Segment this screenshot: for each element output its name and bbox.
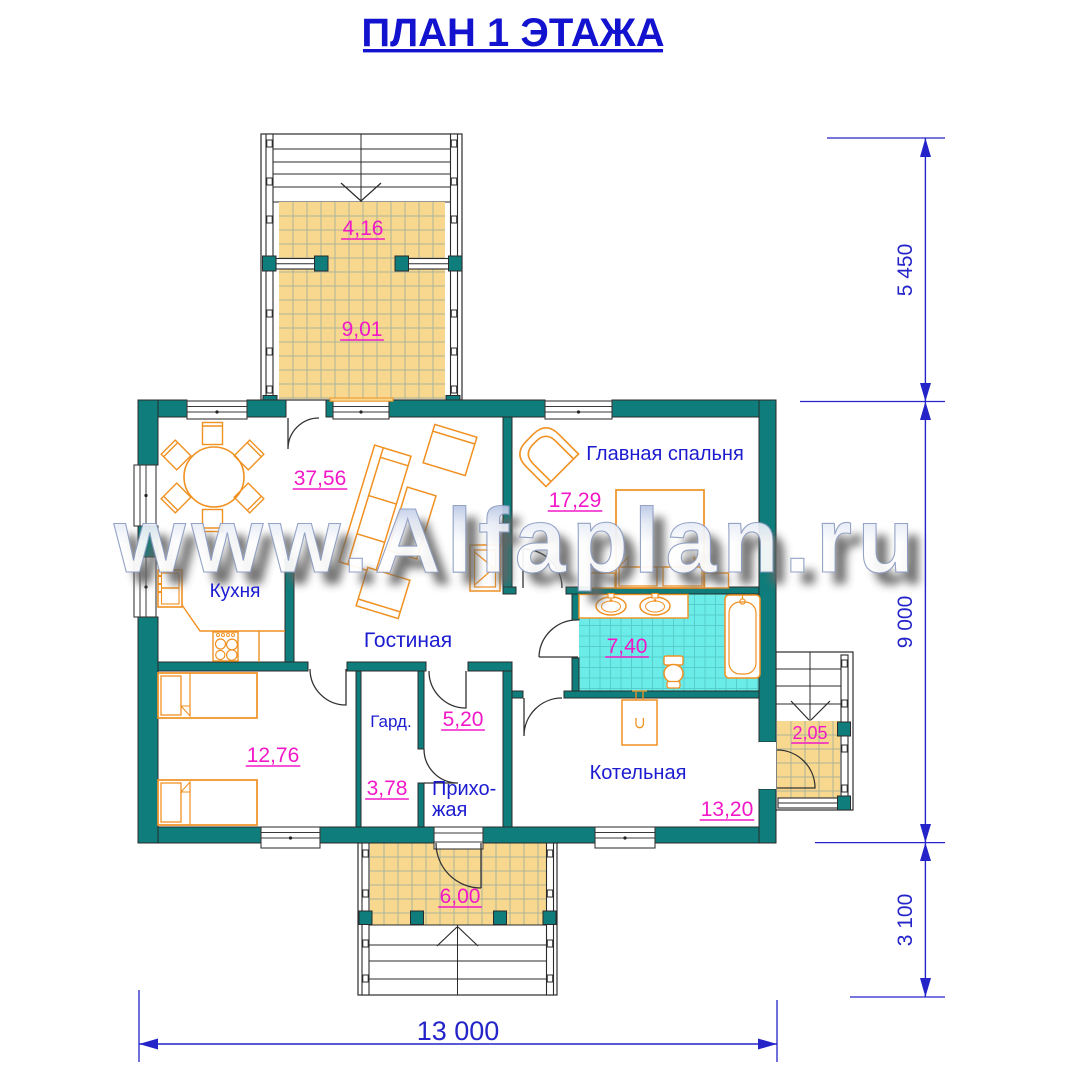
svg-text:9,01: 9,01 — [342, 318, 383, 341]
svg-text:5 450: 5 450 — [894, 244, 917, 297]
svg-text:Котельная: Котельная — [590, 762, 687, 784]
svg-text:ПЛАН 1 ЭТАЖА: ПЛАН 1 ЭТАЖА — [361, 11, 664, 55]
svg-text:Главная спальня: Главная спальня — [586, 443, 744, 465]
svg-text:7,40: 7,40 — [607, 635, 648, 658]
svg-text:12,76: 12,76 — [247, 744, 300, 767]
svg-text:4,16: 4,16 — [343, 217, 384, 240]
svg-text:13,20: 13,20 — [701, 798, 754, 821]
svg-text:9 000: 9 000 — [894, 596, 917, 649]
svg-text:Прихо-: Прихо- — [432, 778, 496, 800]
svg-text:3,78: 3,78 — [367, 777, 408, 800]
svg-text:5,20: 5,20 — [443, 708, 484, 731]
svg-text:3 100: 3 100 — [894, 894, 917, 947]
svg-text:13 000: 13 000 — [417, 1016, 500, 1046]
svg-text:Гард.: Гард. — [370, 712, 411, 731]
svg-text:Кухня: Кухня — [210, 581, 261, 602]
svg-text:17,29: 17,29 — [549, 489, 602, 512]
svg-text:жая: жая — [432, 799, 467, 821]
svg-text:2,05: 2,05 — [792, 723, 827, 743]
svg-text:Гостиная: Гостиная — [364, 629, 452, 652]
svg-text:37,56: 37,56 — [294, 467, 347, 490]
svg-text:6,00: 6,00 — [440, 885, 481, 908]
